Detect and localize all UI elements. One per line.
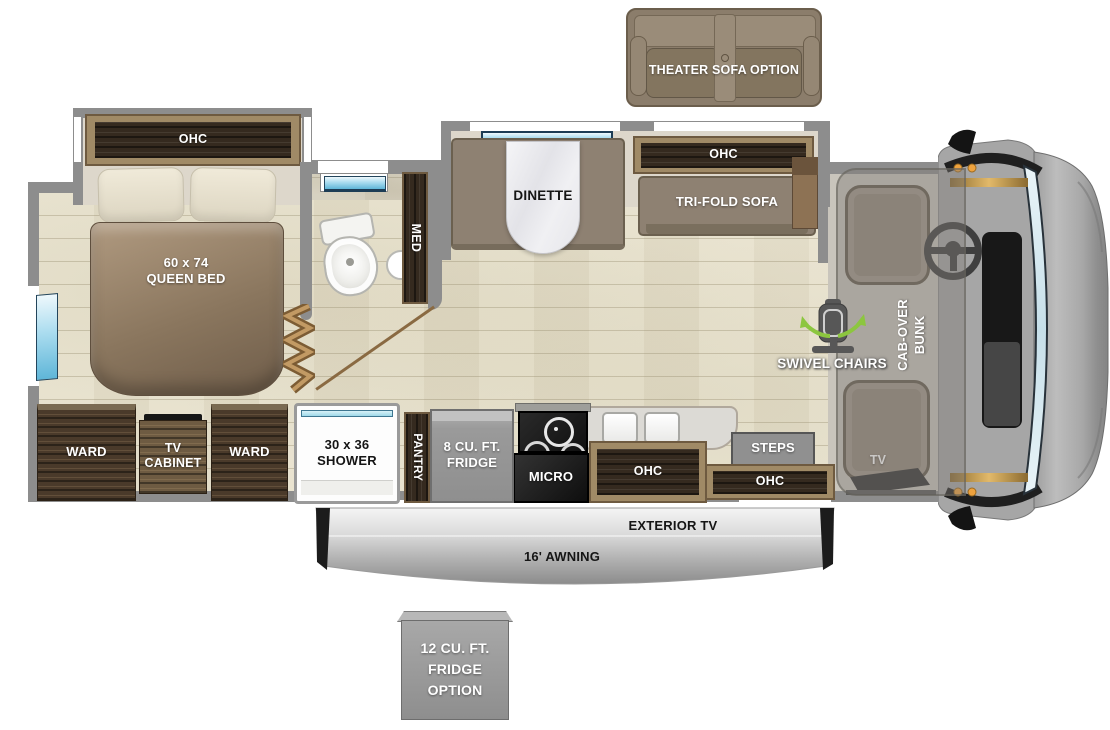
bath-skylight-glass [324, 176, 386, 192]
stove-cooktop [518, 411, 588, 453]
tri-fold-sofa-front [646, 224, 808, 234]
rear-window-glass [36, 293, 58, 381]
sofa-window-frame [654, 122, 804, 131]
entry-steps-label: STEPS [731, 440, 815, 456]
microwave-label: MICRO [513, 469, 589, 485]
shower-glass-edge [301, 410, 393, 417]
dinette-label: DINETTE [496, 188, 590, 204]
theater-sofa-option [626, 8, 822, 107]
swivel-chairs-label: SWIVEL CHAIRS [770, 356, 894, 372]
dinette-window-frame [470, 122, 620, 131]
accordion-door [283, 304, 315, 394]
med-label: MED [408, 224, 422, 253]
pantry-label-wrap: PANTRY [404, 412, 430, 503]
cab-over-bunk-label: CAB-OVER BUNK [895, 299, 929, 371]
exterior-tv-label: EXTERIOR TV [613, 518, 733, 533]
cab-roof-lower [984, 342, 1020, 426]
toilet-flush-button [346, 258, 354, 266]
pantry-label: PANTRY [411, 434, 424, 482]
bed-pillow-right [189, 167, 276, 223]
end-cabinet-top [792, 157, 818, 175]
shower-seat [301, 480, 393, 495]
entry-ohc-label: OHC [713, 473, 827, 491]
marker-light [968, 488, 976, 496]
bathroom-left-wall [300, 162, 312, 320]
galley-ohc-label: OHC [597, 463, 699, 481]
dinette-slide-stub-right [818, 121, 828, 263]
rv-floorplan-diagram: THEATER SOFA OPTION OHC 60 x 74 QUEEN BE… [0, 0, 1110, 730]
fridge-8cuft-label: 8 CU. FT. FRIDGE [432, 438, 512, 472]
theater-sofa-label: THEATER SOFA OPTION [636, 62, 812, 80]
ward-right-label: WARD [211, 444, 288, 460]
cab-over-bunk-label-wrap: CAB-OVER BUNK [872, 250, 952, 420]
theater-sofa-cupholder [721, 54, 729, 62]
sink-basin-left [602, 412, 638, 444]
queen-bed-label: 60 x 74 QUEEN BED [110, 254, 262, 288]
fridge-8cuft-top [432, 411, 512, 421]
bed-slide-window-left [74, 117, 81, 162]
awning-label: 16' AWNING [502, 549, 622, 564]
fridge-option-label: 12 CU. FT. FRIDGE OPTION [401, 638, 509, 700]
med-label-wrap: MED [402, 172, 428, 304]
living-ohc-label: OHC [641, 146, 806, 164]
sink-basin-right [644, 412, 680, 444]
queen-bed [90, 222, 284, 396]
bath-wall-window [318, 161, 388, 173]
bed-pillow-left [97, 167, 184, 223]
bed-slide-window-right [304, 117, 311, 162]
bedroom-ohc-label: OHC [95, 131, 291, 149]
ward-left-label: WARD [37, 444, 136, 460]
stove-burner-small [524, 441, 550, 453]
bathroom-right-wall [428, 162, 442, 310]
dinette-slide-stub-left [441, 205, 451, 260]
swivel-chair-icon [800, 298, 866, 358]
tv-cabinet-label: TV CABINET [139, 440, 207, 472]
marker-light [968, 164, 976, 172]
shower-label: 30 x 36 SHOWER [300, 436, 394, 470]
tri-fold-sofa-label: TRI-FOLD SOFA [646, 194, 808, 210]
